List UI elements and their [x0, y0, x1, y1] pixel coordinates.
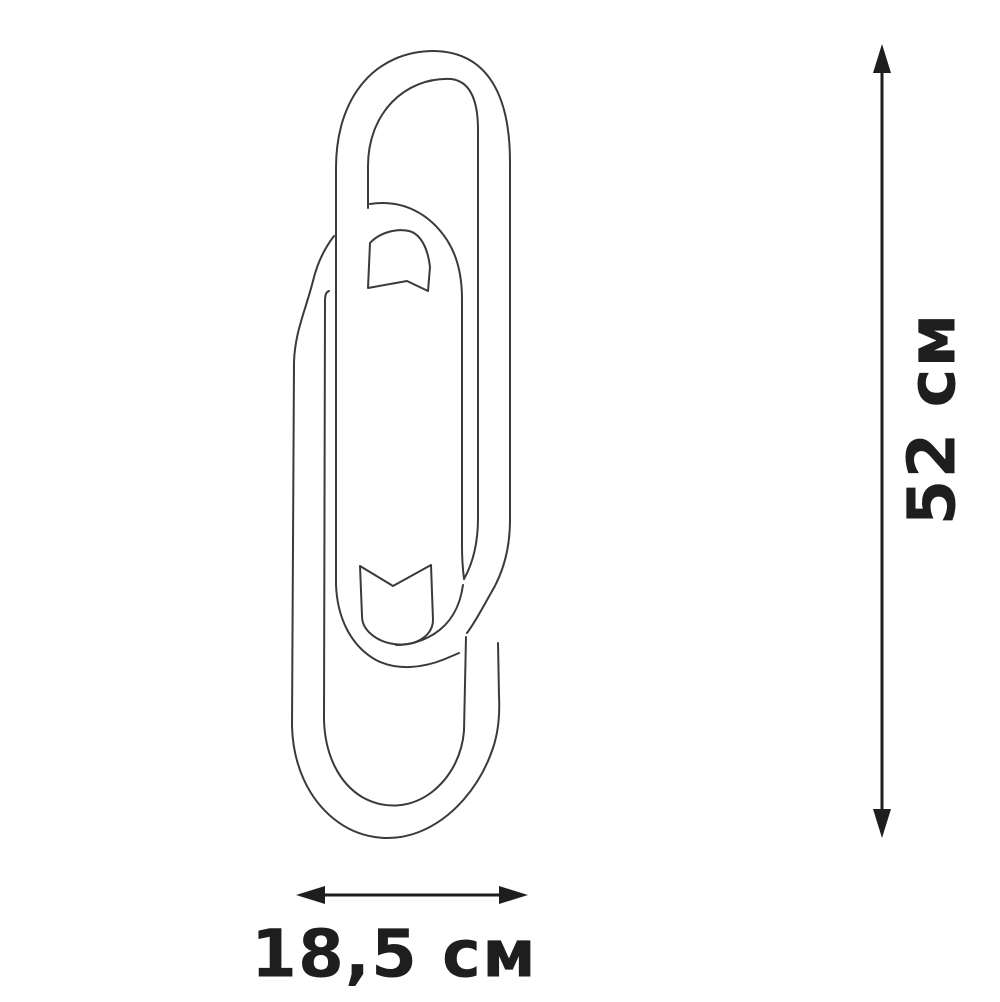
lamp-outline-group [292, 51, 510, 838]
lower-bracket-path [360, 565, 433, 645]
height-arrow-head-top-icon [873, 44, 891, 73]
lamp-line-drawing [0, 0, 1000, 1002]
lower-loop-inner-path [324, 291, 466, 806]
upper-bracket-path [368, 230, 430, 291]
top-loop-outer-path [336, 51, 510, 633]
width-arrow-head-right-icon [499, 886, 528, 904]
height-dimension-label: 52 см [894, 313, 971, 526]
dimension-arrows-group [296, 44, 891, 904]
height-arrow-head-bottom-icon [873, 809, 891, 838]
lower-loop-arch-right-path [370, 203, 464, 579]
width-arrow-head-left-icon [296, 886, 325, 904]
width-dimension-label: 18,5 см [251, 916, 537, 993]
height-arrow [873, 44, 891, 838]
lower-loop-outer-path [292, 236, 499, 838]
top-loop-hook-inner-path [396, 585, 463, 645]
top-loop-hook-outer-path [336, 584, 459, 667]
width-arrow [296, 886, 528, 904]
dimension-diagram: 52 см 18,5 см [0, 0, 1000, 1002]
